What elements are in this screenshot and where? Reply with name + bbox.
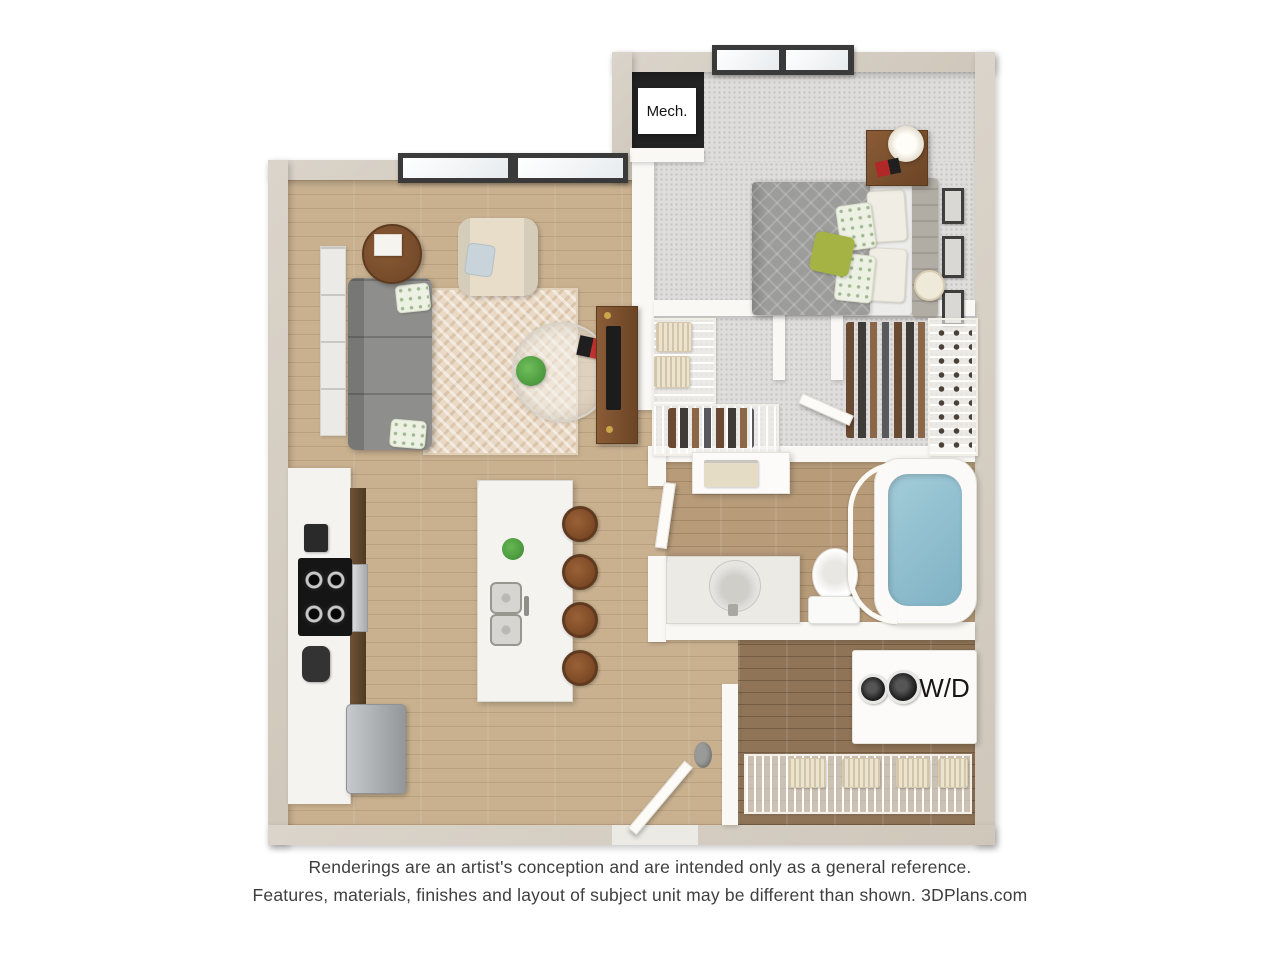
shelf-basket bbox=[788, 758, 826, 788]
mech-label-text: Mech. bbox=[647, 103, 688, 120]
closet-basket bbox=[654, 356, 690, 388]
window-pane bbox=[786, 50, 848, 70]
bathtub-water bbox=[888, 474, 962, 606]
floorplan-canvas: Mech. W/D Renderings are an artist's con… bbox=[0, 0, 1280, 960]
kitchen-counter bbox=[288, 468, 351, 804]
bar-stool bbox=[562, 602, 598, 638]
sofa-pillow bbox=[389, 418, 427, 449]
entry-decor bbox=[694, 742, 712, 768]
console-decor bbox=[606, 426, 613, 433]
refrigerator bbox=[346, 704, 406, 794]
island-sink bbox=[490, 582, 522, 614]
laundry-basket bbox=[914, 270, 945, 301]
shelf-basket bbox=[938, 758, 968, 788]
bed-green-pillow bbox=[808, 230, 855, 277]
bar-stool bbox=[562, 554, 598, 590]
hanging-clothes bbox=[668, 408, 754, 448]
disclaimer-line-2: Features, materials, finishes and layout… bbox=[0, 884, 1280, 906]
interior-wall-bathroom-left-lower bbox=[648, 556, 666, 642]
washer-dryer-label-text: W/D bbox=[919, 673, 970, 704]
disclaimer-line-1: Renderings are an artist's conception an… bbox=[0, 856, 1280, 878]
washer-dryer-label: W/D bbox=[916, 668, 973, 708]
tv bbox=[606, 326, 621, 410]
island-sink bbox=[490, 614, 522, 646]
window-pane bbox=[717, 50, 779, 70]
bedroom-window bbox=[712, 45, 854, 75]
interior-wall-laundry-left bbox=[722, 684, 738, 825]
interior-wall-bathroom-bottom bbox=[666, 622, 975, 640]
washer-door bbox=[858, 674, 888, 704]
exterior-wall-right bbox=[975, 52, 995, 845]
window-pane bbox=[518, 158, 623, 178]
wall-art bbox=[942, 236, 964, 278]
wall-art bbox=[942, 188, 964, 224]
coffee-maker bbox=[304, 524, 328, 552]
vanity-faucet bbox=[728, 604, 738, 616]
table-lamp bbox=[888, 126, 924, 162]
sofa-pillow bbox=[395, 282, 432, 313]
armchair-pillow bbox=[464, 242, 496, 278]
shelf-basket bbox=[896, 758, 930, 788]
island-faucet bbox=[524, 598, 529, 616]
interior-wall-mech-bottom bbox=[630, 148, 704, 162]
closet-basket bbox=[656, 322, 692, 352]
cooktop bbox=[298, 558, 352, 636]
shelf-basket bbox=[842, 758, 880, 788]
island-plant bbox=[502, 538, 524, 560]
shower-rod bbox=[848, 462, 897, 624]
baseboard-radiator bbox=[320, 246, 346, 436]
mech-room-label: Mech. bbox=[638, 88, 696, 134]
hanging-clothes bbox=[846, 322, 928, 438]
console-decor bbox=[604, 312, 611, 319]
stand-mixer bbox=[302, 646, 330, 682]
bar-stool bbox=[562, 506, 598, 542]
towel bbox=[704, 460, 758, 487]
side-table-tray bbox=[374, 234, 402, 256]
potted-plant bbox=[516, 356, 546, 386]
range-hood bbox=[352, 564, 368, 632]
living-room-window bbox=[398, 153, 628, 183]
dryer-door bbox=[886, 670, 920, 704]
exterior-wall-left bbox=[268, 160, 288, 845]
bar-stool bbox=[562, 650, 598, 686]
window-pane bbox=[403, 158, 508, 178]
entry-threshold bbox=[612, 825, 698, 845]
toilet-tank bbox=[808, 596, 860, 624]
shoes bbox=[930, 322, 972, 448]
